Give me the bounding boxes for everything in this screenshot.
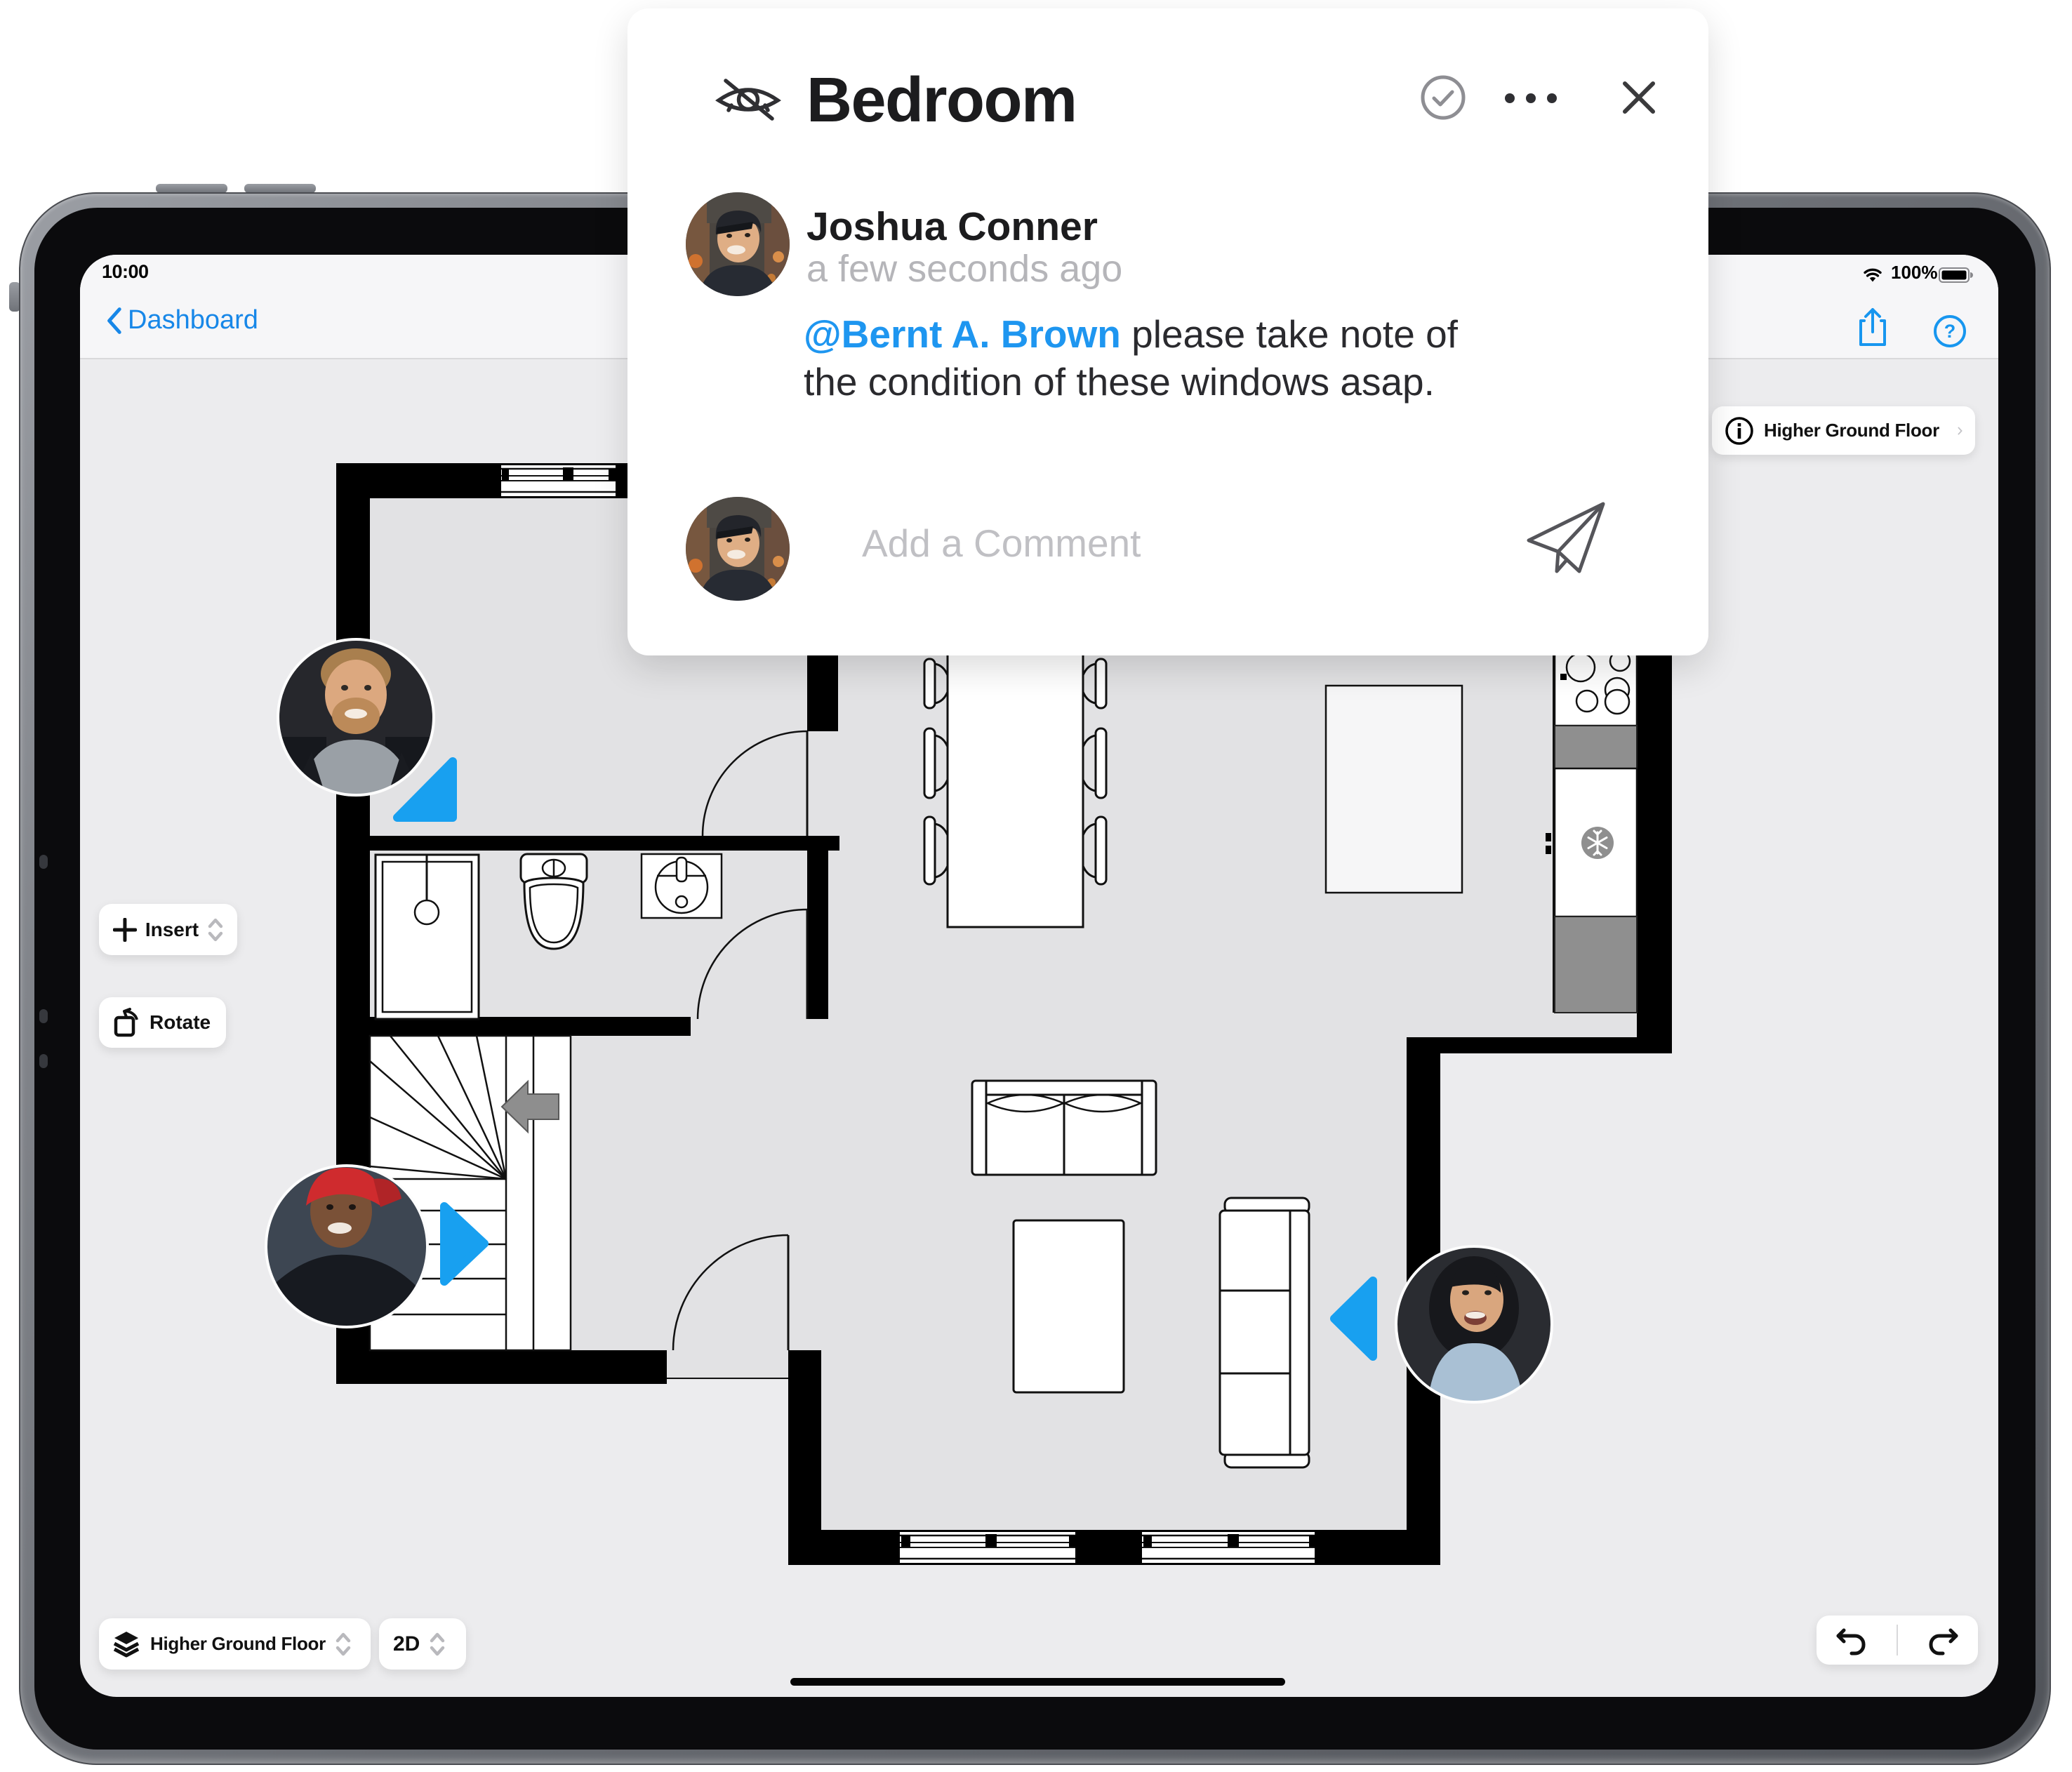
svg-text:?: ? (1944, 321, 1956, 342)
